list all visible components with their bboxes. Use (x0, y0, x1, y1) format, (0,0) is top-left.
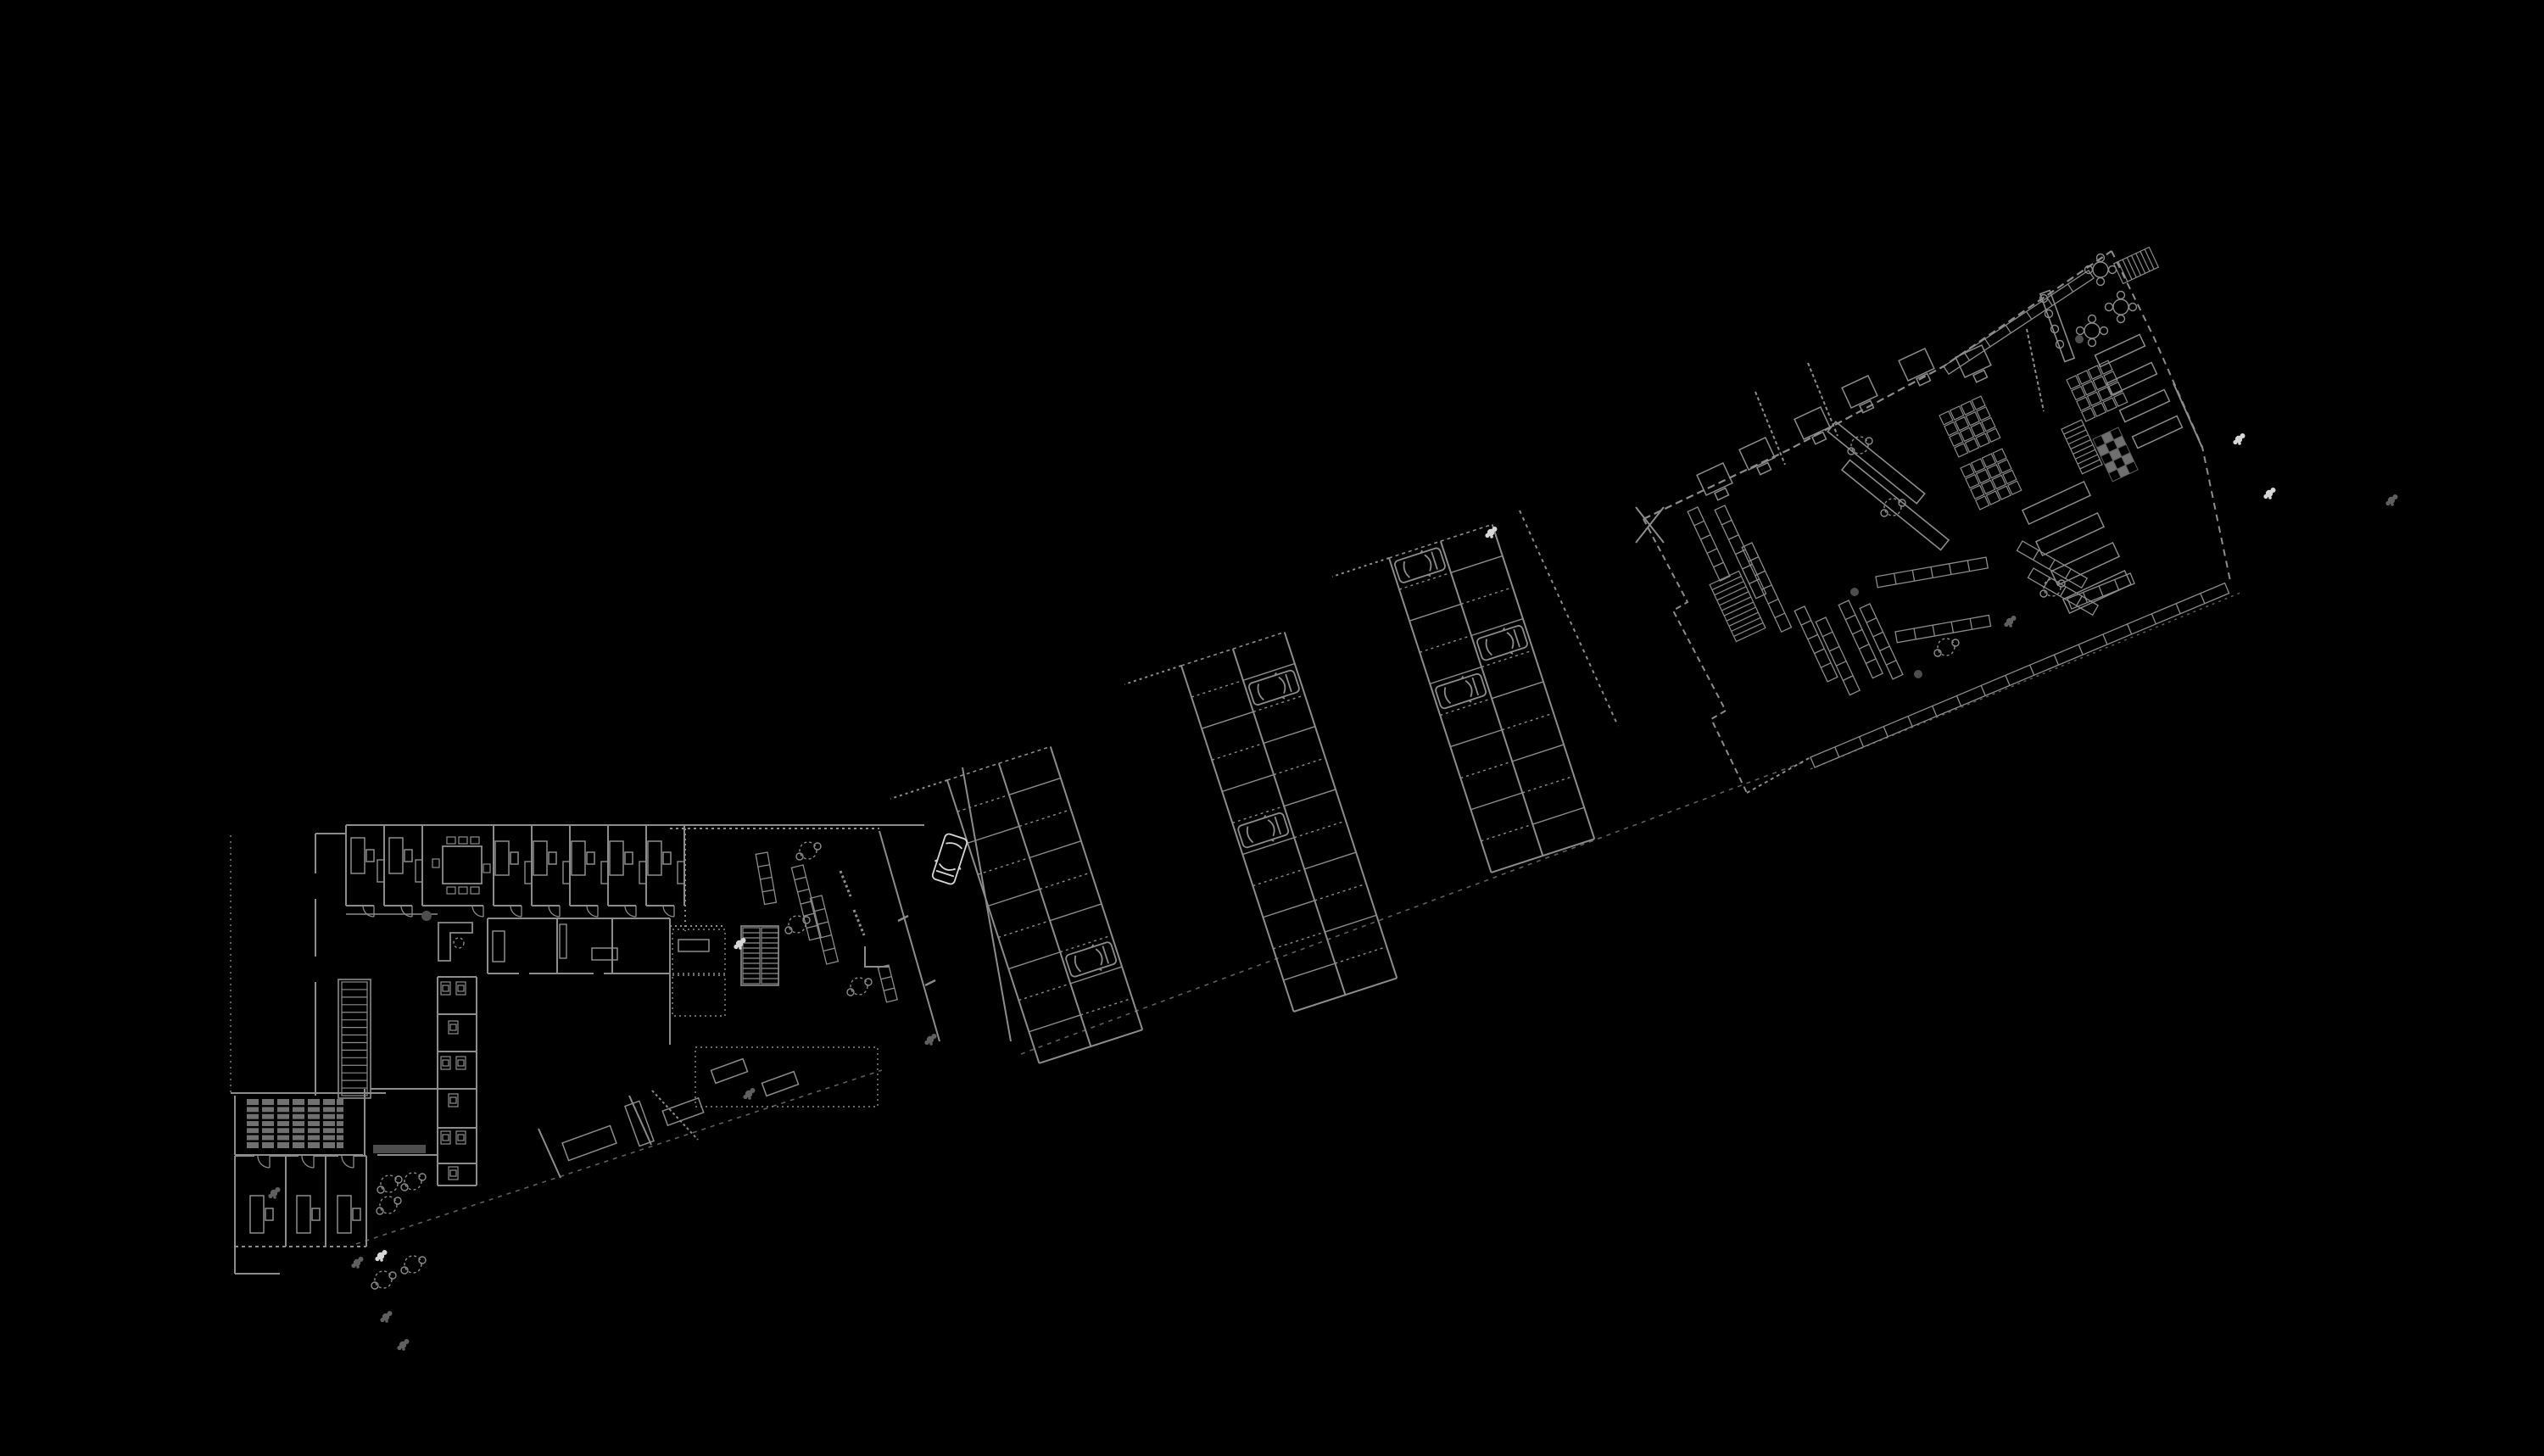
floor-plan-screenshot (0, 0, 2544, 1456)
right-building (1636, 247, 2230, 793)
floor-plan-canvas (0, 0, 2544, 1456)
figures (268, 433, 2397, 1351)
left-building (235, 825, 924, 1289)
parking-area (929, 524, 1594, 1063)
